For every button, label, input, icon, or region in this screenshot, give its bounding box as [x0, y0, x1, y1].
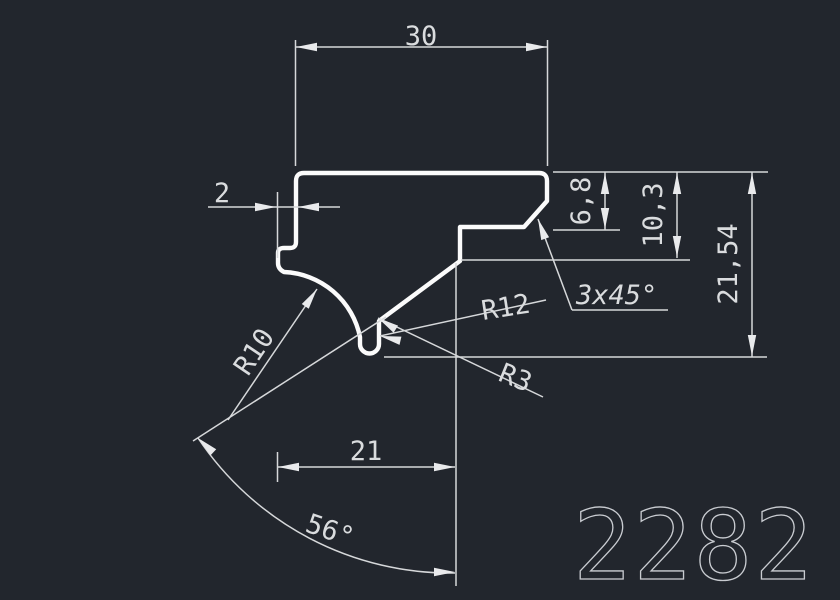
- arrowhead: [298, 203, 319, 211]
- dim-depth-small-text: 6,8: [566, 177, 597, 226]
- dim-total-height-text: 21,54: [713, 223, 744, 304]
- chamfer-note-text: 3x45°: [575, 280, 657, 311]
- arrowhead: [296, 43, 317, 51]
- arrowhead: [601, 173, 609, 194]
- dim-top-width-text: 30: [405, 21, 438, 52]
- dimension-texts: 30 2 6,8 10,3 21,54 3x45° 21 56° R10 R12…: [214, 21, 744, 554]
- arrowhead: [278, 463, 299, 471]
- arrowhead: [601, 208, 609, 229]
- drawing-canvas[interactable]: 30 2 6,8 10,3 21,54 3x45° 21 56° R10 R12…: [0, 0, 840, 600]
- radius-r12-text: R12: [479, 289, 532, 327]
- part-outline: [278, 173, 547, 354]
- radius-r3-text: R3: [494, 358, 536, 399]
- arrowhead: [673, 236, 681, 257]
- dim-step-width-text: 2: [214, 178, 230, 209]
- arrowhead: [255, 203, 276, 211]
- radius-r10-text: R10: [228, 323, 281, 381]
- arrowhead: [434, 568, 455, 576]
- part-number-text: 2282: [573, 489, 815, 600]
- dim-depth-mid-text: 10,3: [638, 182, 669, 247]
- arrowhead: [748, 173, 756, 194]
- arrowhead: [673, 173, 681, 194]
- arrowhead: [526, 43, 547, 51]
- arrowhead: [302, 287, 321, 309]
- angle-leg-line: [193, 317, 386, 441]
- arrowhead: [748, 335, 756, 356]
- arrowhead: [534, 218, 549, 241]
- angle-text: 56°: [302, 508, 358, 553]
- arrowhead: [434, 463, 455, 471]
- angle-arc: [198, 438, 455, 573]
- dim-bottom-width-text: 21: [350, 436, 383, 467]
